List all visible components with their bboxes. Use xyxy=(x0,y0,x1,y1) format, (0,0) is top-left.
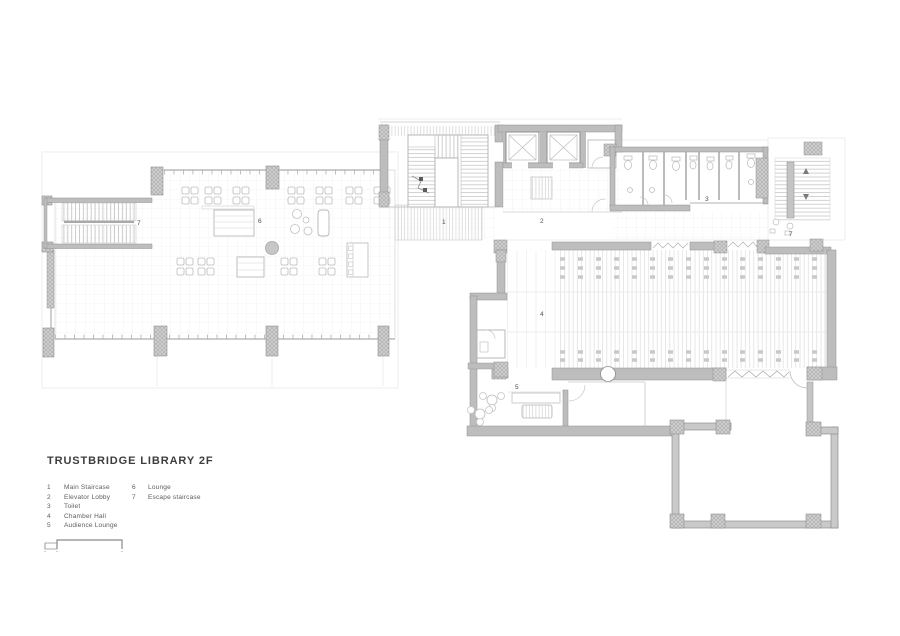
scale-bar xyxy=(44,540,122,552)
floor-plan-page: 7 xyxy=(0,0,900,636)
legend-num: 4 xyxy=(47,512,64,522)
room-label-chamber-hall: 4 xyxy=(540,311,544,318)
hall-side-room xyxy=(477,330,505,358)
main-stair xyxy=(408,135,488,207)
legend-column-1: 1 Main Staircase 2 Elevator Lobby 3 Toil… xyxy=(47,483,118,531)
reading-table-small xyxy=(237,257,264,277)
stair-rail xyxy=(787,162,794,218)
stair-treads-upper xyxy=(62,203,136,221)
terrace xyxy=(670,380,838,528)
stair-handrail xyxy=(64,221,134,224)
legend-item: 3 Toilet xyxy=(47,502,118,512)
hall-south-wall xyxy=(492,367,837,389)
room-label-main-staircase: 1 xyxy=(442,219,446,226)
adjacent-room xyxy=(568,382,645,426)
legend-item: 7 Escape staircase xyxy=(132,493,201,503)
legend-num: 6 xyxy=(132,483,148,493)
sofa xyxy=(522,405,552,418)
terrace-columns xyxy=(670,420,821,528)
legend-num: 2 xyxy=(47,493,64,503)
legend-num: 5 xyxy=(47,521,64,531)
toilet-block: 3 xyxy=(610,147,768,240)
legend-label: Lounge xyxy=(148,483,171,493)
round-column xyxy=(266,242,279,255)
legend-label: Escape staircase xyxy=(148,493,201,503)
stair-treads-lower xyxy=(62,225,136,243)
south-wall xyxy=(467,426,672,436)
legend-label: Main Staircase xyxy=(64,483,110,493)
legend-item: 5 Audience Lounge xyxy=(47,521,118,531)
floor-plan-drawing: 7 xyxy=(0,0,900,636)
lobby-mat xyxy=(531,177,552,199)
room-label-audience-lounge: 5 xyxy=(515,384,519,391)
page-title: TRUSTBRIDGE LIBRARY 2F xyxy=(47,455,213,467)
lounge-table xyxy=(512,393,560,403)
legend-num: 7 xyxy=(132,493,148,503)
elevator-shaft-1 xyxy=(506,132,539,163)
legend-item: 2 Elevator Lobby xyxy=(47,493,118,503)
legend-item: 1 Main Staircase xyxy=(47,483,118,493)
room-label-escape-right: 7 xyxy=(789,231,793,238)
room-label-escape-left: 7 xyxy=(137,220,141,227)
legend-label: Elevator Lobby xyxy=(64,493,110,503)
room-label-elevator-lobby: 2 xyxy=(540,218,544,225)
legend-num: 3 xyxy=(47,502,64,512)
hall-east-wall xyxy=(827,250,836,370)
shelf-unit xyxy=(347,243,368,277)
legend-num: 1 xyxy=(47,483,64,493)
legend-label: Toilet xyxy=(64,502,80,512)
legend-label: Chamber Hall xyxy=(64,512,106,522)
legend-item: 6 Lounge xyxy=(132,483,201,493)
room-label-lounge: 6 xyxy=(258,218,262,225)
elevator-lobby: 2 xyxy=(498,125,622,225)
stair-treads xyxy=(775,158,830,220)
lounge-wing: 7 xyxy=(42,166,395,357)
elevator-shaft-2 xyxy=(547,132,580,163)
legend-label: Audience Lounge xyxy=(64,521,118,531)
room-label-toilet: 3 xyxy=(705,196,709,203)
legend-item: 4 Chamber Hall xyxy=(47,512,118,522)
terrace-walls xyxy=(672,423,838,528)
legend-column-2: 6 Lounge 7 Escape staircase xyxy=(132,483,201,502)
